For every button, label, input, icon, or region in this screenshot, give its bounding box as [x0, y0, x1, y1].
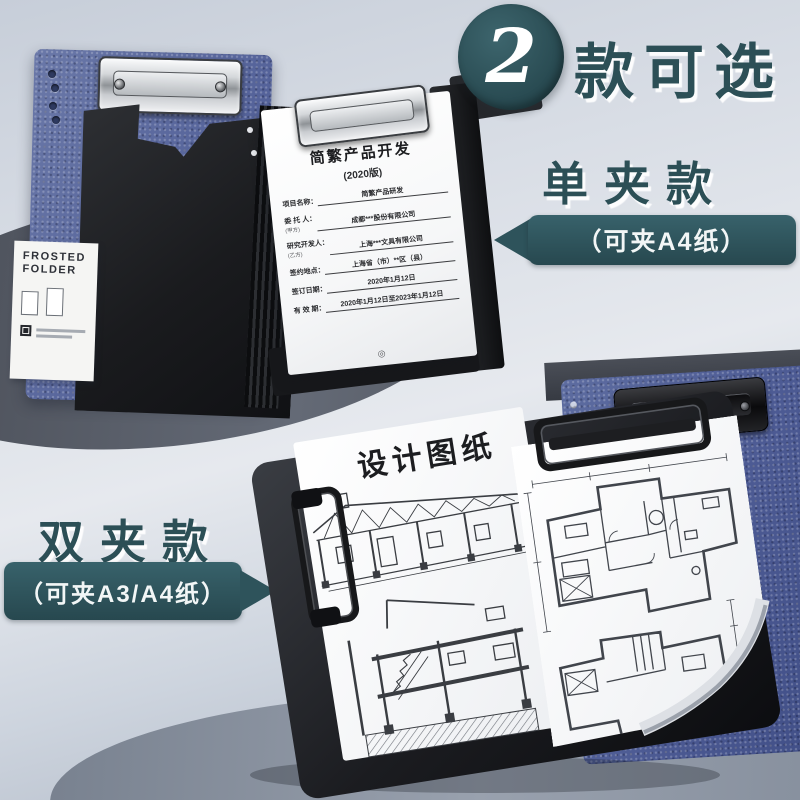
- field-label: 签订日期：: [291, 286, 327, 297]
- headline: 款可选: [574, 24, 784, 111]
- binder-hole: [49, 102, 57, 110]
- single-clip-capacity-pill: （可夹A4纸）: [528, 215, 796, 265]
- double-clip-capacity: （可夹A3/A4纸）: [19, 574, 227, 609]
- cover-hole: [251, 150, 257, 156]
- text-bar: [36, 329, 85, 334]
- label-fineprint: [36, 326, 88, 340]
- text-bar: [36, 335, 72, 339]
- badge-number: 2: [485, 14, 537, 100]
- folder-icon: [46, 288, 64, 317]
- field-label: 有 效 期：: [293, 305, 325, 315]
- field-label: 研究开发人：: [287, 239, 330, 250]
- binder-hole: [52, 116, 60, 124]
- edge-label-line2: FOLDER: [22, 263, 90, 278]
- clip-slot: [309, 98, 416, 132]
- single-clip-capacity: （可夹A4纸）: [577, 222, 748, 258]
- field-sub: (甲方): [285, 227, 300, 235]
- binder-hole: [51, 84, 59, 92]
- label-footer: [20, 325, 88, 339]
- field-label: 签约地点：: [289, 267, 325, 278]
- arrow-left-icon: [494, 219, 530, 261]
- clip-slot: [112, 71, 227, 99]
- style-count-badge: 2: [458, 4, 564, 110]
- label-illustrations: [21, 287, 90, 317]
- document-fields: 项目名称： 简繁产品研发 委 托 人：(甲方) 成都***股份有限公司 研究开发…: [282, 181, 460, 317]
- field-label: 委 托 人：: [284, 215, 316, 225]
- field-sub: (乙方): [288, 252, 303, 260]
- double-clip-capacity-pill: （可夹A3/A4纸）: [4, 562, 242, 620]
- qr-icon: [20, 325, 31, 336]
- folder-icon: [21, 291, 39, 316]
- open-blueprint-folder: 设计图纸: [235, 355, 800, 800]
- product-showcase: FROSTED FOLDER ✶ 简繁产品开发 (2020版) 项目名称：: [0, 0, 800, 800]
- field-label: 项目名称：: [282, 198, 318, 209]
- binder-hole: [48, 70, 56, 78]
- cover-hole: [247, 127, 253, 133]
- edge-label: FROSTED FOLDER: [10, 241, 99, 382]
- single-clip-title: 单夹款: [542, 148, 728, 214]
